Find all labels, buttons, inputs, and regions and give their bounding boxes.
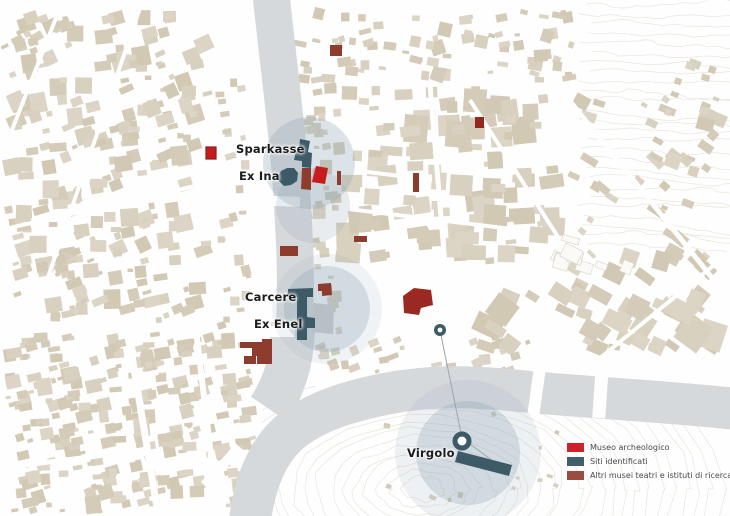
building <box>395 89 413 100</box>
building <box>190 485 205 497</box>
building <box>337 56 352 67</box>
building <box>222 373 236 385</box>
building <box>513 40 525 51</box>
building <box>182 442 196 451</box>
building <box>41 340 51 348</box>
legend-item-altri: Altri musei teatri e istituti di ricerca <box>567 471 730 480</box>
ex-enel-annex <box>312 303 334 334</box>
building <box>403 195 416 206</box>
building <box>57 94 67 105</box>
building <box>46 502 52 507</box>
building <box>51 354 63 363</box>
building <box>529 226 549 243</box>
building <box>432 35 438 42</box>
building <box>230 78 237 87</box>
building <box>223 317 230 323</box>
building <box>71 308 79 312</box>
building <box>239 414 251 423</box>
building <box>112 436 126 443</box>
building <box>189 282 207 295</box>
building <box>75 77 92 93</box>
building <box>514 246 528 254</box>
building <box>147 390 156 399</box>
building <box>201 240 211 246</box>
building <box>59 470 69 477</box>
building <box>215 92 224 98</box>
building <box>552 61 562 71</box>
building <box>157 231 174 249</box>
site-marker-museo <box>206 147 216 159</box>
building <box>113 155 133 173</box>
building <box>137 170 147 176</box>
building <box>145 75 152 79</box>
building <box>341 12 350 21</box>
building <box>485 257 494 264</box>
building <box>134 265 146 278</box>
building <box>344 242 358 253</box>
building <box>135 459 142 466</box>
building <box>93 474 102 479</box>
site-marker-altri <box>413 173 419 192</box>
building <box>113 247 122 257</box>
building <box>42 180 59 198</box>
building <box>498 245 515 262</box>
building <box>94 29 113 45</box>
building <box>230 297 239 306</box>
building <box>109 343 118 353</box>
building <box>206 345 222 358</box>
building <box>170 145 189 166</box>
building <box>91 216 103 228</box>
building <box>46 398 53 403</box>
building <box>156 317 162 323</box>
building <box>171 428 176 433</box>
site-marker-museo <box>475 117 484 128</box>
building <box>170 485 183 499</box>
building <box>372 86 381 95</box>
building <box>120 208 139 227</box>
building <box>88 487 94 493</box>
building <box>168 387 180 394</box>
building <box>373 21 384 29</box>
map-legend: Museo archeologico Siti identificati Alt… <box>567 443 730 480</box>
building <box>455 232 479 245</box>
building <box>22 424 31 431</box>
building <box>515 33 520 36</box>
building <box>226 503 231 507</box>
building <box>52 199 67 209</box>
building <box>244 443 250 449</box>
legend-label-siti: Siti identificati <box>590 457 648 466</box>
building <box>26 470 41 485</box>
building <box>509 208 523 221</box>
building <box>245 274 251 279</box>
building <box>234 254 244 265</box>
building <box>85 495 102 515</box>
building <box>165 201 180 218</box>
building <box>358 14 366 21</box>
building <box>383 123 394 131</box>
building <box>535 77 544 83</box>
building <box>90 179 107 188</box>
site-marker-altri <box>330 45 342 56</box>
building <box>41 159 56 175</box>
building <box>504 132 513 140</box>
site-marker-altri <box>354 236 367 242</box>
building <box>136 65 147 72</box>
legend-item-museo: Museo archeologico <box>567 443 730 452</box>
building <box>189 111 197 118</box>
building <box>163 11 175 23</box>
building <box>359 98 369 105</box>
building <box>522 103 538 120</box>
building <box>6 396 11 399</box>
building <box>349 37 356 45</box>
building <box>18 157 32 172</box>
legend-swatch-museo-icon <box>567 443 584 452</box>
legend-swatch-altri-icon <box>567 471 584 480</box>
building <box>538 94 549 104</box>
building <box>361 60 370 70</box>
building <box>332 38 339 43</box>
building <box>83 263 100 278</box>
map-label-carcere: Carcere <box>245 290 296 304</box>
building <box>368 150 382 158</box>
building <box>474 34 489 49</box>
building <box>239 211 247 215</box>
building <box>73 223 90 237</box>
building <box>537 478 542 482</box>
building <box>177 133 183 138</box>
building <box>40 473 50 485</box>
building <box>157 475 170 486</box>
legend-swatch-siti-icon <box>567 457 584 466</box>
site-marker-altri <box>280 246 298 256</box>
building <box>22 354 28 361</box>
building <box>50 312 60 321</box>
building <box>459 15 472 25</box>
building <box>69 335 74 340</box>
building <box>155 374 166 382</box>
building <box>491 184 505 192</box>
building <box>143 342 155 348</box>
building <box>443 54 452 59</box>
building <box>169 255 181 265</box>
building <box>127 269 133 272</box>
map-label-virgolo: Virgolo <box>407 446 455 460</box>
building <box>37 262 49 272</box>
building <box>409 35 421 48</box>
building <box>237 307 245 312</box>
building <box>106 54 117 63</box>
building <box>108 468 117 477</box>
building <box>173 357 182 366</box>
building <box>99 411 109 423</box>
building <box>76 255 83 263</box>
legend-label-altri: Altri musei teatri e istituti di ricerca <box>590 471 730 480</box>
building <box>560 10 566 15</box>
legend-label-museo: Museo archeologico <box>590 443 670 452</box>
building <box>218 98 226 104</box>
building <box>236 185 244 193</box>
map-label-sparkasse: Sparkasse <box>236 142 305 156</box>
building <box>450 174 474 196</box>
building <box>138 477 147 487</box>
building <box>298 74 310 84</box>
building <box>109 387 121 393</box>
building <box>39 427 54 441</box>
map-label-ex-enel: Ex Enel <box>254 317 302 331</box>
building <box>426 40 435 49</box>
building <box>303 67 312 74</box>
building <box>221 390 228 395</box>
building <box>383 41 396 51</box>
building <box>218 236 225 242</box>
building <box>60 77 67 83</box>
building <box>16 205 32 222</box>
site-marker-altri <box>301 168 311 190</box>
building <box>409 142 433 160</box>
map-label-ex-ina: Ex Ina <box>239 169 280 183</box>
building <box>530 122 542 129</box>
building <box>221 333 235 350</box>
building <box>148 202 155 209</box>
map-canvas <box>0 0 730 516</box>
city-map: Sparkasse Ex Ina Carcere Ex Enel Virgolo… <box>0 0 730 516</box>
building <box>452 124 465 135</box>
building <box>49 222 58 227</box>
legend-item-siti: Siti identificati <box>567 457 730 466</box>
building <box>342 86 358 100</box>
building <box>534 49 548 62</box>
site-marker-altri <box>337 171 341 185</box>
building <box>333 108 341 117</box>
building <box>104 212 115 222</box>
building <box>111 227 121 232</box>
building <box>128 127 140 132</box>
building <box>497 217 509 222</box>
building <box>44 466 50 471</box>
building <box>364 188 380 205</box>
virgolo-ring-site <box>455 434 469 448</box>
building <box>447 101 458 113</box>
building <box>412 15 420 21</box>
site-marker-altri <box>244 356 256 364</box>
building <box>49 142 67 152</box>
building <box>400 345 405 350</box>
building <box>133 299 145 308</box>
funicular-station-center <box>438 328 443 333</box>
building <box>108 270 124 286</box>
building <box>38 199 48 206</box>
building <box>546 165 558 174</box>
building <box>407 161 423 171</box>
building <box>136 58 142 61</box>
building <box>2 157 21 176</box>
building <box>416 228 430 244</box>
building <box>487 151 503 169</box>
building <box>44 296 63 313</box>
building <box>182 85 196 96</box>
building <box>30 236 47 253</box>
building <box>462 245 486 260</box>
building <box>345 66 359 76</box>
building <box>324 83 337 94</box>
building <box>506 115 516 123</box>
building <box>421 71 430 81</box>
building <box>483 204 506 226</box>
building <box>227 401 237 408</box>
building <box>152 213 158 219</box>
